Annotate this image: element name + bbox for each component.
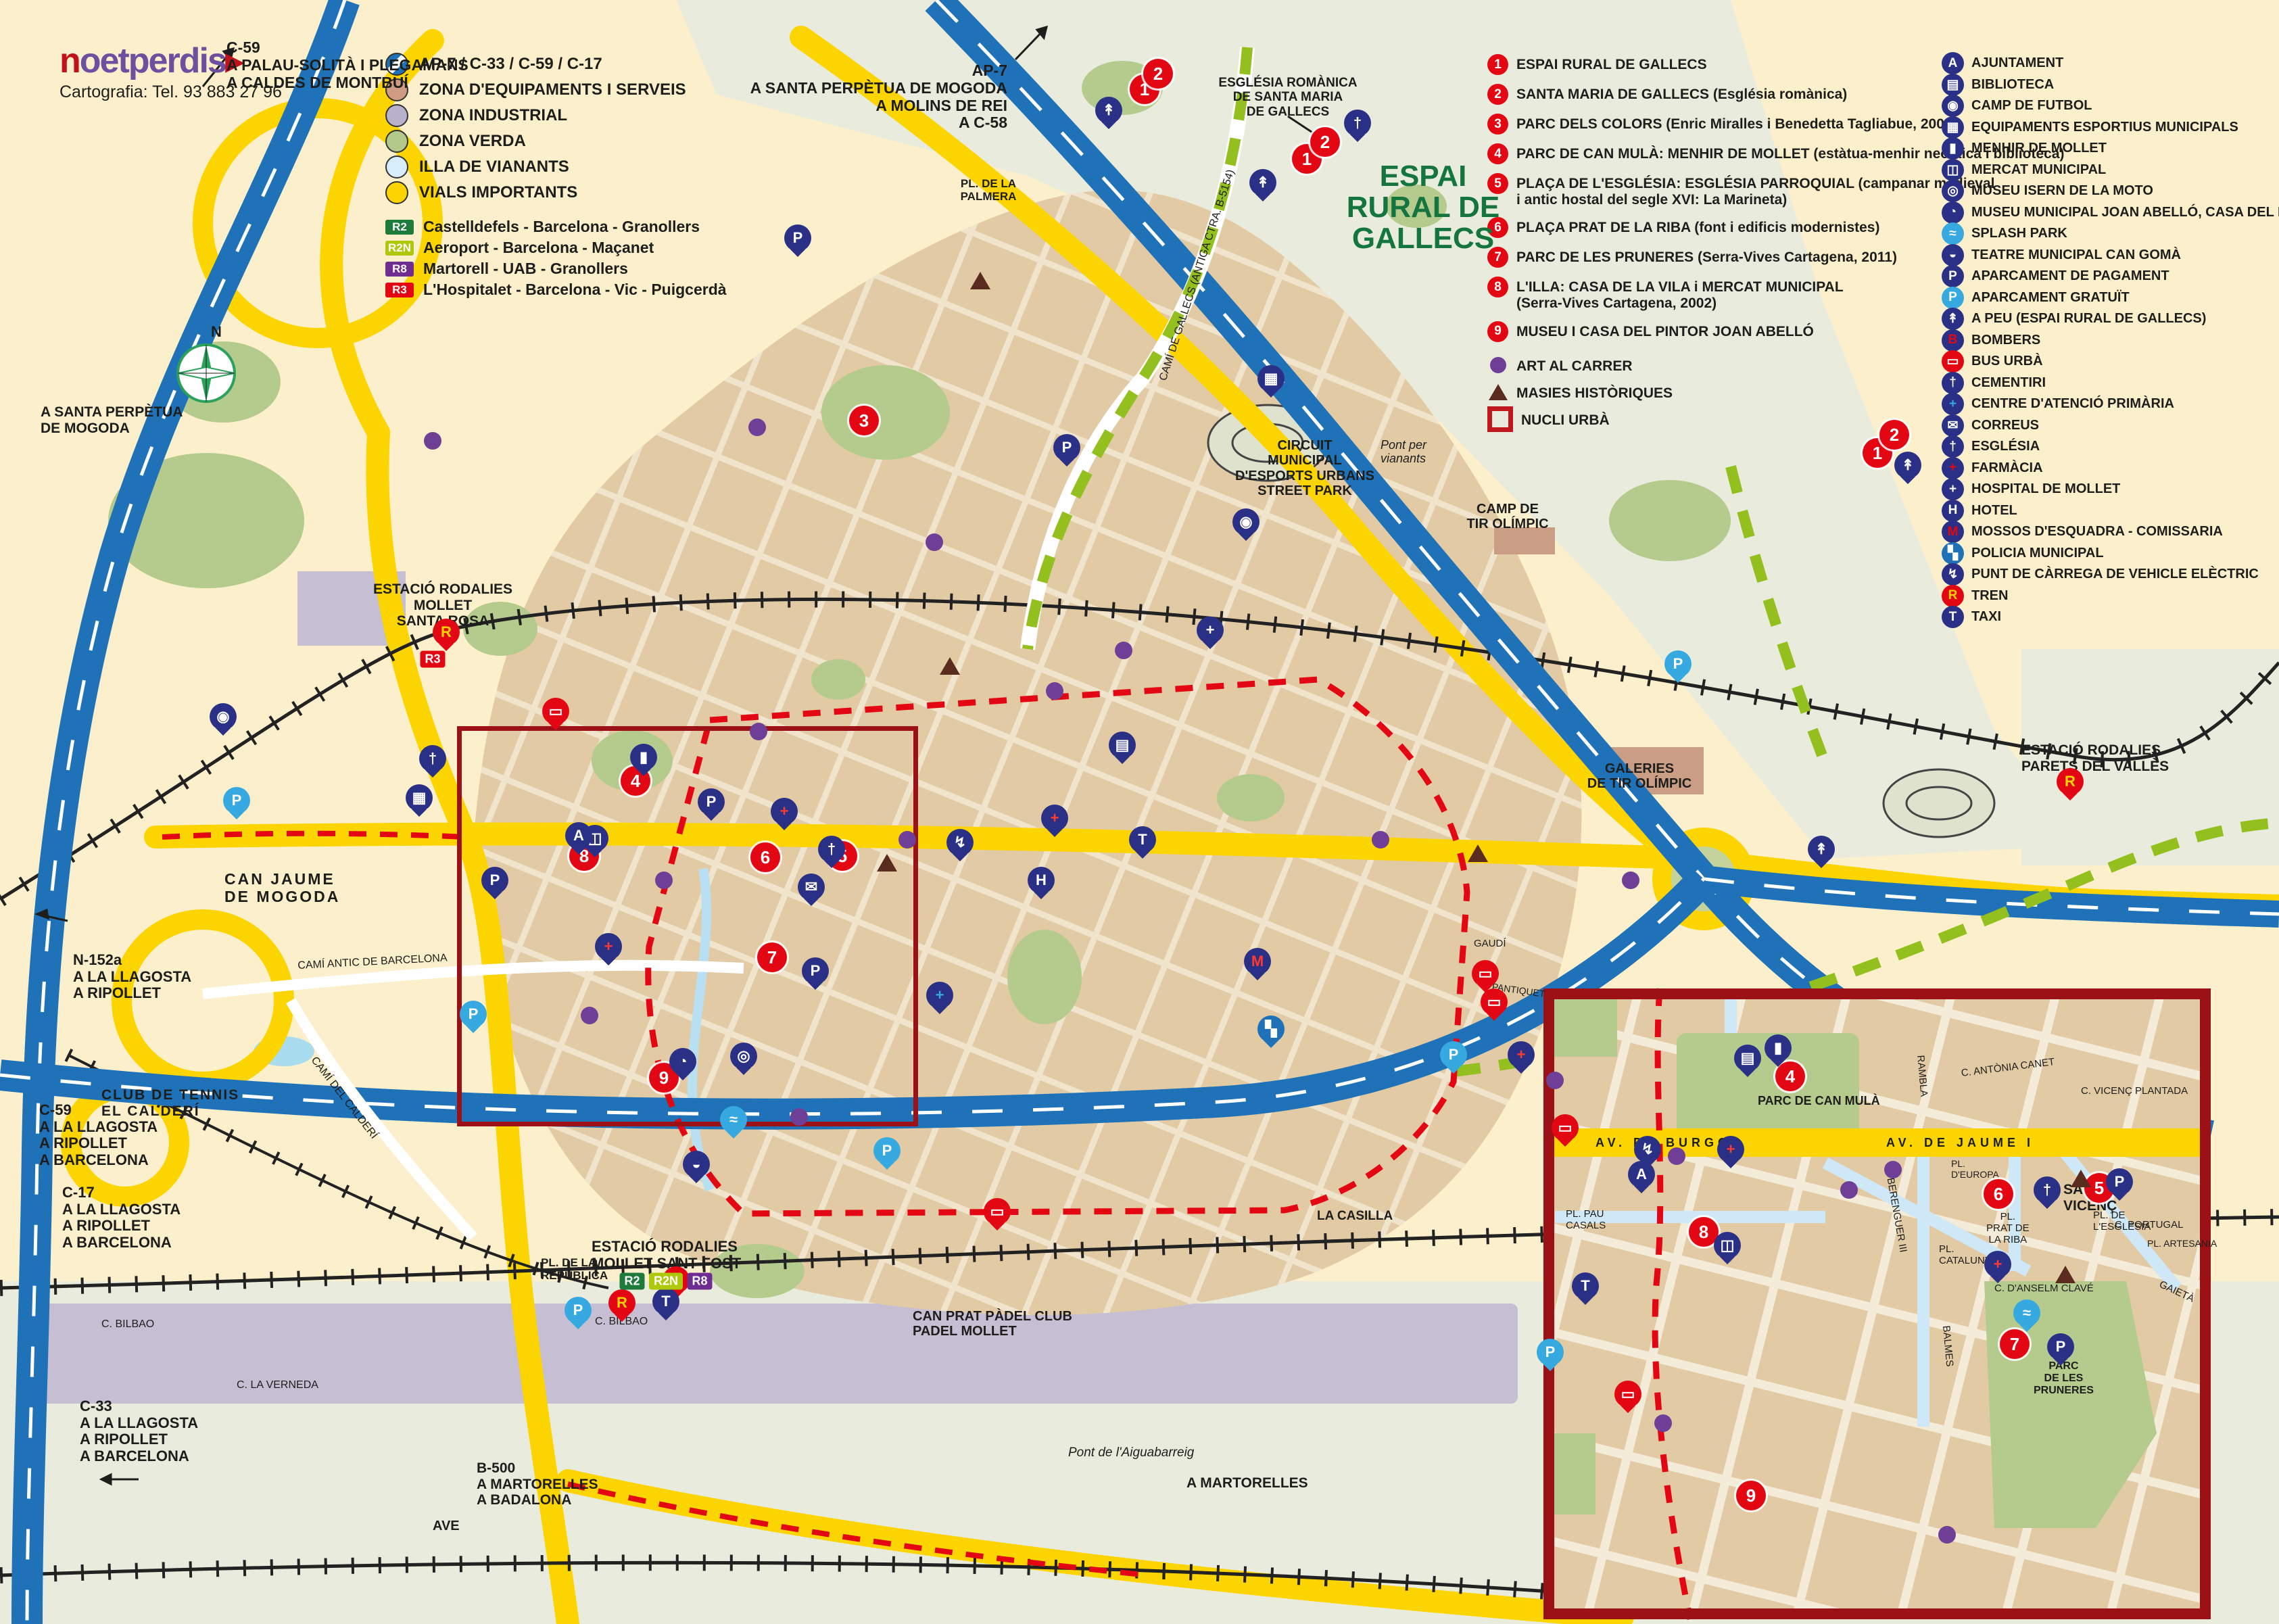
marker-glyph: ≈ xyxy=(729,1112,738,1127)
map-marker: + xyxy=(1508,1041,1535,1068)
service-legend-row: R TREN xyxy=(1942,586,2279,607)
map-marker: P xyxy=(784,224,811,252)
service-legend-row: ✉ CORREUS xyxy=(1942,415,2279,437)
service-icon: P xyxy=(1942,265,1964,287)
service-label: FARMÀCIA xyxy=(1971,460,2043,476)
poi-extra-icon xyxy=(1487,357,1508,373)
map-label: Pont de l'Aiguabarreig xyxy=(1068,1446,1194,1460)
map-marker: 2 xyxy=(1879,420,1909,450)
marker-glyph: T xyxy=(661,1294,670,1309)
map-label: N-152a A LA LLAGOSTA A RIPOLLET xyxy=(73,952,191,1002)
map-marker: T xyxy=(1129,826,1156,853)
zone-swatch-icon xyxy=(385,181,408,204)
service-icon: ◎ xyxy=(1942,180,1964,202)
service-label: MUSEU ISERN DE LA MOTO xyxy=(1971,183,2153,199)
station-line-badge: R2N xyxy=(649,1273,683,1290)
map-label: ESTACIÓ RODALIES MOLLET SANT FOST xyxy=(592,1239,741,1272)
map-marker: P xyxy=(873,1137,901,1164)
poi-number-badge: 3 xyxy=(1487,114,1508,135)
map-marker xyxy=(898,831,916,849)
map-marker xyxy=(940,657,960,675)
marker-glyph: P xyxy=(490,873,500,888)
poi-extra-icon xyxy=(1487,384,1508,400)
marker-glyph: + xyxy=(1051,811,1059,826)
poi-extra-icon xyxy=(1487,406,1513,432)
map-marker: ↯ xyxy=(946,829,974,856)
service-label: EQUIPAMENTS ESPORTIUS MUNICIPALS xyxy=(1971,120,2238,135)
service-label: POLICIA MUNICIPAL xyxy=(1971,546,2104,561)
marker-glyph: P xyxy=(2115,1174,2125,1189)
poi-number-badge: 2 xyxy=(1487,84,1508,105)
marker-glyph: 4 xyxy=(1785,1068,1795,1085)
poi-extra-label: NUCLI URBÀ xyxy=(1521,410,1610,429)
map-marker: T xyxy=(652,1288,679,1315)
marker-glyph: ↟ xyxy=(1103,103,1115,118)
poi-extra-label: MASIES HISTÒRIQUES xyxy=(1516,383,1673,402)
map-marker: ▭ xyxy=(1472,960,1499,987)
station-line-badge: R8 xyxy=(687,1273,712,1290)
map-marker: R xyxy=(608,1289,635,1316)
service-legend-row: ◔ MUSEU MUNICIPAL JOAN ABELLÓ, CASA DEL … xyxy=(1942,202,2279,224)
service-label: CAMP DE FUTBOL xyxy=(1971,98,2092,114)
service-legend-row: ◎ MUSEU ISERN DE LA MOTO xyxy=(1942,181,2279,202)
map-label: Pont per vianants xyxy=(1381,438,1426,465)
service-icon: H xyxy=(1942,500,1964,522)
map-marker: ↯ xyxy=(1634,1136,1661,1163)
rail-line-label: L'Hospitalet - Barcelona - Vic - Puigcer… xyxy=(423,281,727,299)
map-marker xyxy=(424,432,441,450)
service-label: CORREUS xyxy=(1971,418,2039,433)
service-icon: ◉ xyxy=(1942,95,1964,117)
service-legend-row: ▦ EQUIPAMENTS ESPORTIUS MUNICIPALS xyxy=(1942,117,2279,139)
map-marker: A xyxy=(1628,1161,1655,1188)
map-marker: ▮ xyxy=(1765,1034,1792,1061)
marker-glyph: P xyxy=(2056,1339,2066,1354)
marker-glyph: ↟ xyxy=(1902,458,1914,473)
marker-glyph: † xyxy=(827,842,836,857)
marker-glyph: T xyxy=(1581,1279,1589,1293)
map-marker: ▭ xyxy=(1614,1381,1641,1408)
map-marker: T xyxy=(1572,1272,1599,1299)
service-legend-row: A AJUNTAMENT xyxy=(1942,53,2279,74)
service-label: MENHIR DE MOLLET xyxy=(1971,141,2107,156)
rail-line-badge: R2 xyxy=(385,220,414,235)
marker-glyph: P xyxy=(1545,1345,1556,1360)
map-marker xyxy=(581,1007,598,1024)
service-label: CENTRE D'ATENCIÓ PRIMÀRIA xyxy=(1971,396,2174,412)
map-marker: ◒ xyxy=(683,1151,710,1178)
map-label: C. BILBAO xyxy=(101,1318,154,1331)
map-label: C. VICENÇ PLANTADA xyxy=(2081,1086,2188,1097)
marker-glyph: 2 xyxy=(1153,65,1163,82)
service-label: MOSSOS D'ESQUADRA - COMISSARIA xyxy=(1971,524,2223,540)
marker-glyph: ≈ xyxy=(2023,1306,2031,1320)
marker-glyph: ↯ xyxy=(1641,1142,1654,1157)
marker-glyph: R xyxy=(2065,774,2076,789)
marker-glyph: ▭ xyxy=(990,1204,1005,1219)
service-legend-row: T TAXI xyxy=(1942,606,2279,628)
zone-swatch-icon xyxy=(385,156,408,178)
map-marker: ≈ xyxy=(2013,1299,2040,1327)
rail-line-badge: R2N xyxy=(385,241,414,256)
rail-legend-row: R2 Castelldefels - Barcelona - Granoller… xyxy=(385,216,727,237)
service-icon: ↯ xyxy=(1942,563,1964,586)
map-marker: P xyxy=(698,788,725,815)
marker-glyph: ↯ xyxy=(954,835,966,850)
marker-glyph: 7 xyxy=(767,949,777,966)
map-marker xyxy=(877,854,897,871)
map-label: C. LA VERNEDA xyxy=(237,1379,318,1391)
service-legend-row: B BOMBERS xyxy=(1942,330,2279,352)
map-marker: R xyxy=(433,619,460,646)
service-legend-row: ↯ PUNT DE CÀRREGA DE VEHICLE ELÈCTRIC xyxy=(1942,564,2279,586)
marker-glyph: R xyxy=(441,625,452,640)
marker-glyph: ◎ xyxy=(737,1049,750,1064)
poi-label: MUSEU I CASA DEL PINTOR JOAN ABELLÓ xyxy=(1516,321,1814,340)
map-marker: ▦ xyxy=(406,784,433,811)
service-legend-row: H HOTEL xyxy=(1942,500,2279,522)
map-marker: ↟ xyxy=(1095,97,1122,124)
service-legend-row: † ESGLÉSIA xyxy=(1942,436,2279,458)
marker-glyph: ▤ xyxy=(1115,738,1130,753)
service-label: HOTEL xyxy=(1971,503,2017,519)
map-label: CAMP DE TIR OLÍMPIC xyxy=(1466,502,1548,532)
service-icon: ▭ xyxy=(1942,350,1964,373)
service-label: AJUNTAMENT xyxy=(1971,55,2063,71)
map-marker xyxy=(1884,1161,1902,1178)
map-marker xyxy=(1546,1072,1564,1089)
service-legend-row: P APARCAMENT DE PAGAMENT xyxy=(1942,266,2279,287)
map-marker xyxy=(790,1108,808,1126)
svg-text:N: N xyxy=(211,325,222,340)
map-label: LA CASILLA xyxy=(1317,1209,1393,1223)
marker-glyph: ▮ xyxy=(1774,1041,1782,1055)
map-marker: ▮ xyxy=(630,744,657,771)
marker-glyph: P xyxy=(1062,440,1072,455)
rail-line-badge: R3 xyxy=(385,283,414,297)
poi-extra-label: ART AL CARRER xyxy=(1516,356,1633,375)
service-icon: + xyxy=(1942,478,1964,500)
service-label: TAXI xyxy=(1971,609,2001,625)
map-label: A SANTA PERPÈTUA DE MOGODA xyxy=(41,404,183,436)
map-marker: ▭ xyxy=(542,698,569,725)
service-legend-row: ▮ MENHIR DE MOLLET xyxy=(1942,138,2279,160)
map-marker xyxy=(1372,831,1389,849)
map-marker: P xyxy=(1537,1339,1564,1366)
rail-legend-row: R3 L'Hospitalet - Barcelona - Vic - Puig… xyxy=(385,279,727,300)
city-centre-inset-border xyxy=(1543,988,2211,1619)
marker-glyph: A xyxy=(573,828,584,843)
marker-glyph: + xyxy=(1727,1142,1735,1157)
service-label: ESGLÉSIA xyxy=(1971,439,2040,454)
marker-glyph: 9 xyxy=(1746,1487,1756,1504)
marker-glyph: 2 xyxy=(1320,133,1330,151)
service-label: MUSEU MUNICIPAL JOAN ABELLÓ, CASA DEL PI… xyxy=(1971,205,2279,220)
map-marker: ↟ xyxy=(1894,452,1921,479)
service-label: BUS URBÀ xyxy=(1971,354,2043,369)
zone-swatch-icon xyxy=(385,130,408,153)
map-marker: + xyxy=(926,982,953,1009)
zones-legend-row: ZONA INDUSTRIAL xyxy=(385,103,686,128)
map-marker: † xyxy=(1344,110,1371,137)
map-marker: + xyxy=(1984,1251,2011,1278)
service-icon: R xyxy=(1942,585,1964,607)
marker-glyph: P xyxy=(1673,656,1683,671)
marker-glyph: ▭ xyxy=(1479,966,1493,981)
marker-glyph: ◉ xyxy=(1239,515,1252,529)
map-label: A MARTORELLES xyxy=(1186,1475,1308,1491)
map-marker: ↟ xyxy=(1808,836,1835,863)
poi-number-badge: 8 xyxy=(1487,277,1508,297)
map-marker: ◫ xyxy=(1714,1232,1741,1259)
zone-swatch-icon xyxy=(385,104,408,127)
map-label: ESGLÉSIA ROMÀNICA DE SANTA MARIA DE GALL… xyxy=(1218,76,1357,119)
map-marker: ▤ xyxy=(1109,732,1136,759)
map-marker: ◔ xyxy=(669,1048,696,1075)
map-marker: P xyxy=(565,1297,592,1324)
map-marker: ◉ xyxy=(1232,508,1260,535)
map-marker: ▚ xyxy=(1257,1016,1285,1043)
map-marker: H xyxy=(1028,867,1055,894)
map-marker: 2 xyxy=(1143,59,1173,89)
marker-glyph: P xyxy=(706,794,717,809)
map-marker: P xyxy=(223,787,250,814)
marker-glyph: ▮ xyxy=(640,750,648,765)
rail-legend-row: R2N Aeroport - Barcelona - Maçanet xyxy=(385,237,727,258)
map-marker: ▤ xyxy=(1734,1045,1761,1072)
marker-glyph: + xyxy=(1517,1047,1526,1062)
map-label: CLUB DE TENNIS EL CALDERÍ xyxy=(101,1087,239,1119)
map-marker xyxy=(1840,1181,1858,1199)
service-legend-row: M MOSSOS D'ESQUADRA - COMISSARIA xyxy=(1942,521,2279,543)
map-marker xyxy=(2071,1170,2091,1187)
service-legend-row: ◉ CAMP DE FUTBOL xyxy=(1942,95,2279,117)
map-marker: P xyxy=(1053,434,1080,461)
map-marker: ↟ xyxy=(1249,169,1276,196)
map-marker: P xyxy=(1664,650,1692,677)
zones-legend-row: VIALS IMPORTANTS xyxy=(385,180,686,206)
marker-glyph: ◉ xyxy=(216,709,229,724)
map-marker: P xyxy=(481,867,508,894)
service-label: HOSPITAL DE MOLLET xyxy=(1971,481,2120,497)
map-marker xyxy=(1654,1414,1672,1432)
marker-glyph: 5 xyxy=(2094,1179,2104,1197)
marker-glyph: 7 xyxy=(2010,1335,2019,1353)
map-marker: 7 xyxy=(757,942,787,972)
marker-glyph: A xyxy=(1636,1167,1647,1182)
symbol-shape xyxy=(1490,357,1506,373)
marker-glyph: 8 xyxy=(1699,1223,1708,1241)
service-legend-row: P APARCAMENT GRATUÏT xyxy=(1942,287,2279,309)
marker-glyph: + xyxy=(604,939,613,954)
map-label: PL. D'EUROPA xyxy=(1951,1159,1999,1180)
service-legend-row: + HOSPITAL DE MOLLET xyxy=(1942,479,2279,500)
marker-glyph: ▦ xyxy=(1264,371,1278,386)
map-label: AVE xyxy=(433,1519,460,1533)
map-label: C. PORTUGAL xyxy=(2115,1220,2183,1231)
symbol-shape xyxy=(1487,406,1513,432)
marker-glyph: ↟ xyxy=(1815,842,1827,857)
poi-label: PARC DE LES PRUNERES (Serra-Vives Cartag… xyxy=(1516,247,1897,266)
map-marker: † xyxy=(818,836,845,863)
map-label: C-17 A LA LLAGOSTA A RIPOLLET A BARCELON… xyxy=(62,1185,181,1251)
poi-extra-symbols: ART AL CARRER MASIES HISTÒRIQUES NUCLI U… xyxy=(1487,352,1673,433)
rail-line-label: Martorell - UAB - Granollers xyxy=(423,260,628,278)
map-marker: P xyxy=(802,957,829,984)
marker-glyph: ◒ xyxy=(692,1157,700,1172)
zones-legend-row: ILLA DE VIANANTS xyxy=(385,154,686,180)
service-label: TEATRE MUNICIPAL CAN GOMÀ xyxy=(1971,247,2181,263)
marker-glyph: 9 xyxy=(659,1069,669,1086)
service-legend-row: + CENTRE D'ATENCIÓ PRIMÀRIA xyxy=(1942,393,2279,415)
map-marker: ≈ xyxy=(720,1106,747,1133)
map-marker xyxy=(1468,844,1488,862)
map-marker xyxy=(1115,642,1132,659)
map-marker: A xyxy=(565,822,592,849)
map-marker: M xyxy=(1244,948,1271,975)
map-label: CAN JAUME DE MOGODA xyxy=(224,871,340,906)
symbol-shape xyxy=(1489,384,1508,400)
map-marker: ✉ xyxy=(798,874,825,901)
map-marker: ◉ xyxy=(210,703,237,730)
map-marker xyxy=(926,533,943,551)
map-marker: + xyxy=(1717,1136,1744,1163)
map-label: ESTACIÓ RODALIES PARETS DEL VALLÈS xyxy=(2021,742,2169,774)
map-marker: R xyxy=(2057,768,2084,795)
poi-number-badge: 1 xyxy=(1487,54,1508,75)
service-legend-row: ▤ BIBLIOTECA xyxy=(1942,74,2279,96)
poi-label: ESPAI RURAL DE GALLECS xyxy=(1516,54,1707,73)
service-label: APARCAMENT GRATUÏT xyxy=(1971,290,2130,306)
map-label: CIRCUIT MUNICIPAL D'ESPORTS URBANS STREE… xyxy=(1235,438,1374,499)
marker-glyph: + xyxy=(780,804,789,819)
service-icon: ▦ xyxy=(1942,116,1964,139)
marker-glyph: † xyxy=(429,751,437,766)
map-marker xyxy=(750,723,767,740)
service-legend-row: ▭ BUS URBÀ xyxy=(1942,351,2279,373)
poi-extra-row: NUCLI URBÀ xyxy=(1487,406,1673,433)
service-icon: ◔ xyxy=(1942,201,1964,224)
marker-glyph: + xyxy=(1994,1257,2002,1272)
marker-glyph: M xyxy=(1251,954,1264,969)
map-marker: P xyxy=(460,1001,487,1028)
map-marker: 2 xyxy=(1310,127,1340,157)
map-label: B-500 A MARTORELLES A BADALONA xyxy=(477,1460,598,1508)
map-canvas: N noetperdis▸ Cartografia: Tel. 93 883 2… xyxy=(0,0,2279,1624)
map-marker xyxy=(655,871,673,889)
rail-line-label: Castelldefels - Barcelona - Granollers xyxy=(423,218,700,236)
marker-glyph: ◔ xyxy=(678,1054,687,1069)
map-marker: † xyxy=(419,745,446,772)
marker-glyph: 6 xyxy=(761,849,770,866)
service-label: TREN xyxy=(1971,588,2008,604)
service-legend-row: ▚ POLICIA MUNICIPAL xyxy=(1942,543,2279,565)
marker-glyph: 3 xyxy=(859,412,869,429)
map-label: PL. DE LA PALMERA xyxy=(961,177,1017,203)
map-marker: + xyxy=(1041,805,1068,832)
marker-glyph: ✉ xyxy=(805,880,817,894)
map-label: GAUDÍ xyxy=(1474,938,1506,950)
marker-glyph: 2 xyxy=(1890,426,1899,444)
poi-extra-row: MASIES HISTÒRIQUES xyxy=(1487,379,1673,406)
marker-glyph: P xyxy=(469,1007,479,1022)
map-marker: 6 xyxy=(750,842,780,872)
marker-glyph: ▭ xyxy=(1621,1387,1635,1402)
map-marker xyxy=(1668,1147,1685,1165)
service-label: SPLASH PARK xyxy=(1971,226,2067,241)
service-icon: ◒ xyxy=(1942,244,1964,266)
marker-glyph: ▭ xyxy=(1558,1120,1573,1135)
map-marker: + xyxy=(1197,617,1224,644)
rail-legend-row: R8 Martorell - UAB - Granollers xyxy=(385,258,727,279)
map-marker: † xyxy=(2034,1176,2061,1203)
map-marker xyxy=(1622,871,1639,889)
marker-glyph: P xyxy=(811,963,821,978)
service-icon: ▚ xyxy=(1942,542,1964,565)
service-icon: B xyxy=(1942,329,1964,352)
map-marker xyxy=(1046,682,1063,700)
marker-glyph: P xyxy=(882,1143,892,1158)
service-label: APARCAMENT DE PAGAMENT xyxy=(1971,268,2169,284)
service-icon: A xyxy=(1942,52,1964,74)
service-label: MERCAT MUNICIPAL xyxy=(1971,162,2106,178)
poi-label: L'ILLA: CASA DE LA VILA i MERCAT MUNICIP… xyxy=(1516,277,1844,312)
map-marker: P xyxy=(2106,1168,2133,1195)
service-icon: + xyxy=(1942,457,1964,479)
marker-glyph: R xyxy=(617,1295,627,1310)
service-icon: ▤ xyxy=(1942,74,1964,96)
rail-line-label: Aeroport - Barcelona - Maçanet xyxy=(423,239,654,257)
service-icon: † xyxy=(1942,372,1964,394)
service-icon: ◫ xyxy=(1942,159,1964,181)
map-label: PL. ARTESANIA xyxy=(2147,1239,2217,1249)
service-icon: ≈ xyxy=(1942,222,1964,245)
map-marker xyxy=(748,419,766,436)
map-label: CAN PRAT PÀDEL CLUB PADEL MOLLET xyxy=(913,1309,1072,1339)
service-label: A PEU (ESPAI RURAL DE GALLECS) xyxy=(1971,311,2206,327)
map-marker: 9 xyxy=(1736,1481,1766,1510)
map-marker: ◎ xyxy=(730,1043,757,1070)
marker-glyph: P xyxy=(1449,1047,1459,1062)
map-marker: 3 xyxy=(849,406,879,435)
service-legend-row: ↟ A PEU (ESPAI RURAL DE GALLECS) xyxy=(1942,308,2279,330)
map-label: C-33 A LA LLAGOSTA A RIPOLLET A BARCELON… xyxy=(80,1398,198,1465)
map-marker: ▦ xyxy=(1257,365,1285,392)
zone-label: ZONA INDUSTRIAL xyxy=(419,106,567,125)
poi-label: SANTA MARIA DE GALLECS (Església romànic… xyxy=(1516,84,1847,103)
map-marker: P xyxy=(2047,1333,2074,1360)
service-icon: + xyxy=(1942,393,1964,415)
service-icon: M xyxy=(1942,521,1964,543)
marker-glyph: ↟ xyxy=(1257,175,1269,190)
marker-glyph: + xyxy=(936,988,944,1003)
map-label: C-59 A PALAU-SOLITÀ I PLEGAMANS A CALDES… xyxy=(226,39,469,91)
marker-glyph: + xyxy=(1206,623,1215,638)
map-marker xyxy=(970,272,990,289)
marker-glyph: P xyxy=(793,231,803,245)
map-label: PL. PRAT DE LA RIBA xyxy=(1986,1212,2030,1245)
service-label: PUNT DE CÀRREGA DE VEHICLE ELÈCTRIC xyxy=(1971,567,2259,582)
zone-label: VIALS IMPORTANTS xyxy=(419,183,577,202)
zone-label: ILLA DE VIANANTS xyxy=(419,158,569,176)
service-icon: ▮ xyxy=(1942,137,1964,160)
zone-label: ZONA VERDA xyxy=(419,132,526,151)
map-marker: + xyxy=(771,798,798,825)
service-legend-row: ◫ MERCAT MUNICIPAL xyxy=(1942,160,2279,181)
service-legend-row: ◒ TEATRE MUNICIPAL CAN GOMÀ xyxy=(1942,245,2279,266)
map-label: ESPAI RURAL DE GALLECS xyxy=(1347,161,1500,255)
map-label: AP-7 A SANTA PERPÈTUA DE MOGODA A MOLINS… xyxy=(750,62,1007,132)
